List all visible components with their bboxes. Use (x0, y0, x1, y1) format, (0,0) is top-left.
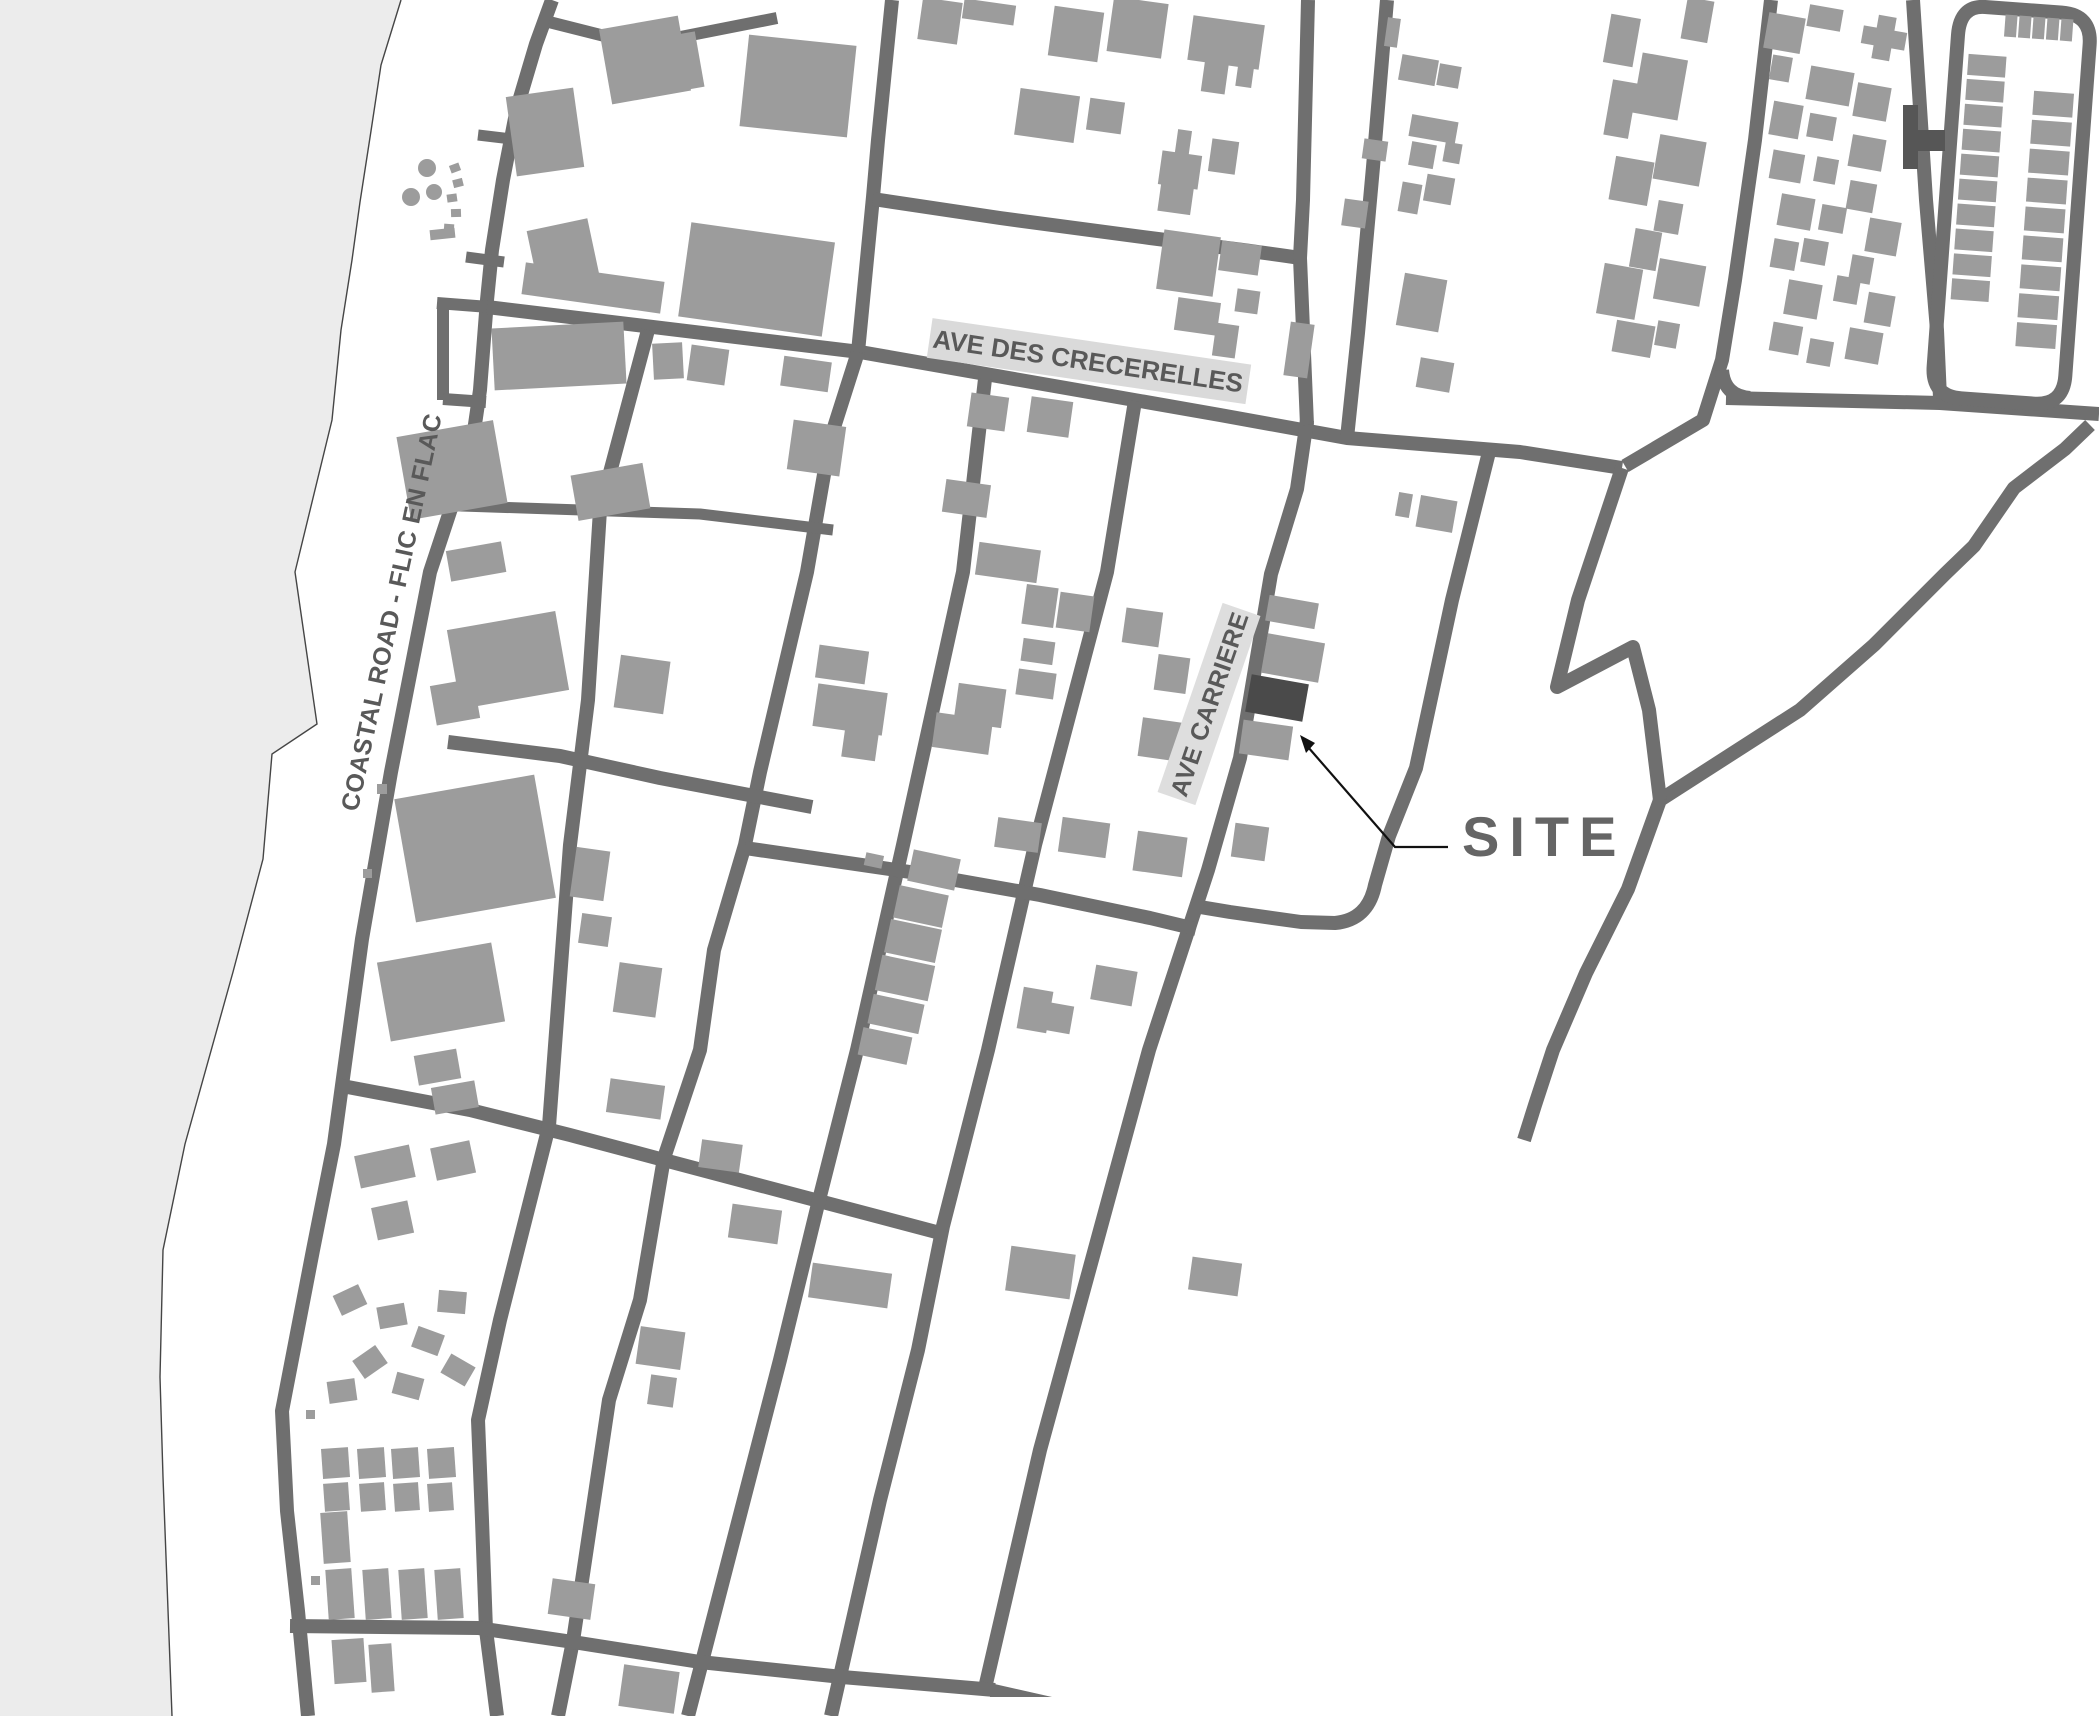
svg-text:SITE: SITE (1462, 805, 1626, 868)
